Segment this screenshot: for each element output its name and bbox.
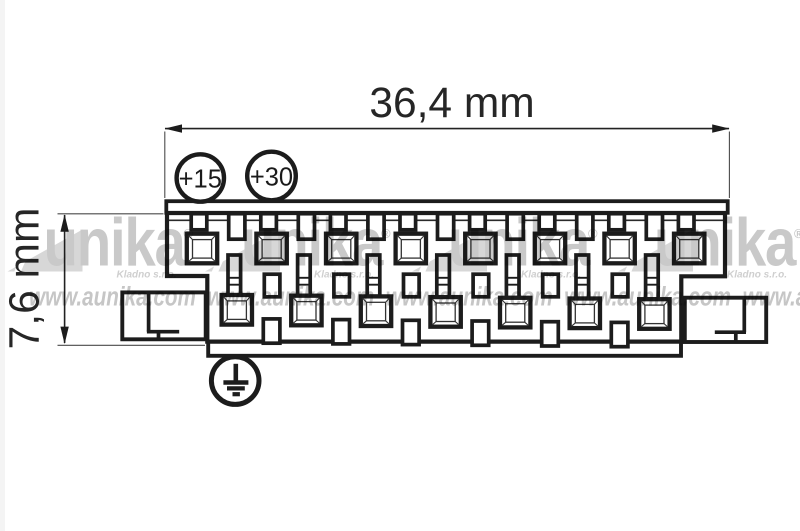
- svg-text:www.aunika.com: www.aunika.com: [207, 282, 374, 312]
- svg-text:7,6 mm: 7,6 mm: [2, 208, 49, 350]
- svg-text:+15: +15: [179, 166, 222, 194]
- svg-text:®: ®: [381, 226, 391, 241]
- svg-text:+30: +30: [250, 164, 293, 192]
- svg-text:®: ®: [184, 226, 194, 241]
- svg-text:Kladno s.r.o.: Kladno s.r.o.: [727, 270, 787, 281]
- svg-text:www.aunika.com: www.aunika.com: [564, 282, 731, 312]
- svg-text:www.aunika.com: www.aunika.com: [29, 282, 196, 312]
- svg-text:36,4 mm: 36,4 mm: [369, 80, 534, 127]
- svg-text:www.aunika.com: www.aunika.com: [386, 282, 553, 312]
- svg-text:®: ®: [794, 226, 800, 241]
- svg-text:®: ®: [588, 226, 598, 241]
- svg-text:Kladno s.r.o.: Kladno s.r.o.: [314, 270, 374, 281]
- svg-text:Kladno s.r.o.: Kladno s.r.o.: [117, 270, 177, 281]
- svg-text:Kladno s.r.o.: Kladno s.r.o.: [521, 270, 581, 281]
- svg-text:www.aunika.com: www.aunika.com: [743, 282, 800, 312]
